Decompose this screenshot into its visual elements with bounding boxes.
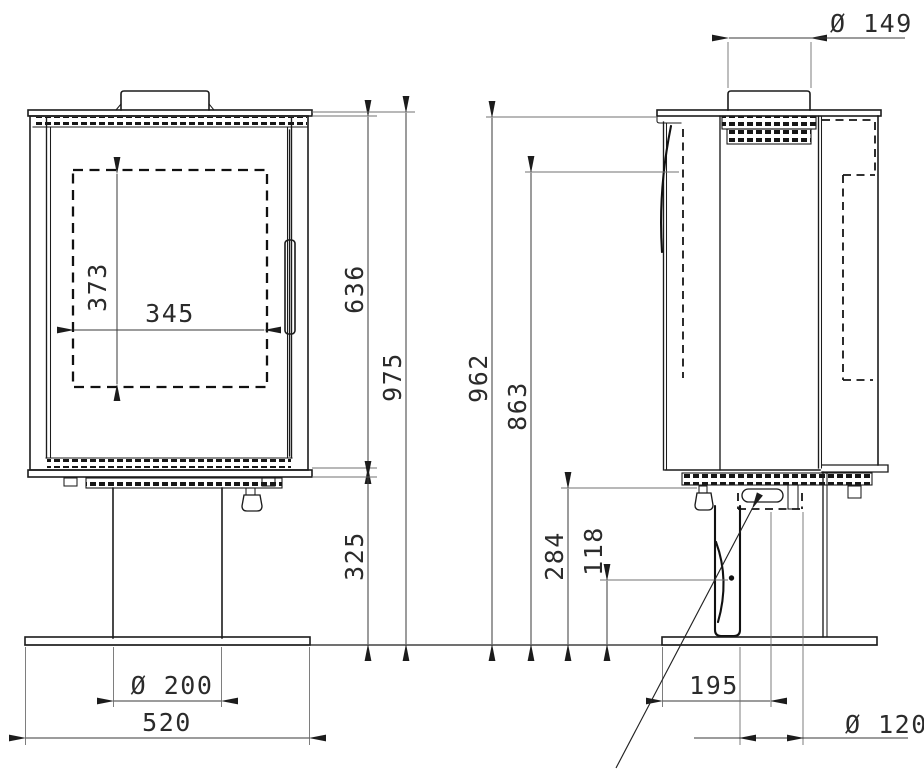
dim-label-d149: Ø 149	[830, 9, 913, 38]
dimensions-side-view: Ø 149 962 863 284 118	[464, 9, 924, 768]
plinth-plate-side	[682, 473, 872, 485]
rear-bottom-lip	[822, 465, 888, 472]
top-louver-band	[33, 117, 307, 125]
knob-bulb	[242, 495, 262, 511]
knob-stem-side	[699, 486, 707, 493]
dimension-pedestal-height: 325	[312, 477, 377, 644]
collar-ring-upper	[722, 116, 816, 129]
side-view	[657, 91, 888, 645]
dim-label-373: 373	[83, 262, 112, 312]
plinth-bolt-left	[64, 478, 77, 486]
knob-stem	[246, 488, 255, 495]
dim-label-195: 195	[689, 671, 739, 700]
dim-label-863: 863	[503, 381, 532, 431]
control-knob-front	[242, 488, 262, 511]
flue-collar-flange	[116, 104, 214, 110]
drawing-svg: 373 345 636 975 325	[0, 0, 924, 769]
rear-foot	[848, 486, 861, 498]
dimensions-front-view: 373 345 636 975 325	[26, 112, 416, 745]
plinth-plate-front	[86, 478, 282, 488]
hidden-air-box	[738, 493, 802, 509]
dim-label-636: 636	[340, 264, 369, 314]
dimension-front-to-column: 195	[663, 512, 772, 707]
dimension-control-pivot-height: 118	[579, 526, 728, 644]
dim-label-d200: Ø 200	[131, 671, 214, 700]
pedestal-column-front	[113, 488, 222, 638]
lever-slot-curve	[716, 542, 724, 622]
top-plate-front-lip	[657, 116, 681, 123]
support-bracket	[788, 486, 798, 509]
dimension-glass-height: 373	[83, 174, 117, 384]
leader-line-air-control	[616, 509, 752, 768]
bottom-plate-front	[28, 470, 312, 477]
dim-label-118: 118	[579, 526, 608, 576]
flue-collar-front	[121, 91, 209, 110]
dimension-body-height: 636	[312, 116, 377, 468]
dimension-pedestal-diameter: Ø 200	[114, 647, 222, 707]
bottom-louver-band	[47, 459, 291, 468]
dimension-column-depth: Ø 120	[694, 512, 924, 745]
air-intake-slot	[742, 489, 783, 502]
knob-bulb-side	[695, 493, 713, 510]
dim-label-962: 962	[464, 353, 493, 403]
collar-ring-lower	[727, 129, 811, 144]
dim-label-284: 284	[540, 531, 569, 581]
dim-label-345: 345	[145, 299, 195, 328]
top-plate-front	[28, 110, 312, 116]
dimension-underside-height: 284	[540, 488, 697, 644]
dim-label-520: 520	[142, 708, 192, 737]
dim-label-975: 975	[378, 352, 407, 402]
control-knob-side	[695, 486, 713, 510]
rear-outlet-knockout-hidden	[843, 122, 875, 380]
base-plate-front	[25, 637, 310, 645]
dim-label-d120: Ø 120	[845, 710, 924, 739]
base-plate-side	[662, 637, 877, 645]
air-control-pivot	[729, 575, 734, 580]
dimension-flue-diameter: Ø 149	[728, 9, 913, 88]
top-plate-side	[657, 110, 881, 116]
dim-label-325: 325	[340, 531, 369, 581]
technical-drawing-stove: 373 345 636 975 325	[0, 0, 924, 769]
flue-collar-side	[728, 91, 810, 110]
front-view	[25, 91, 312, 645]
